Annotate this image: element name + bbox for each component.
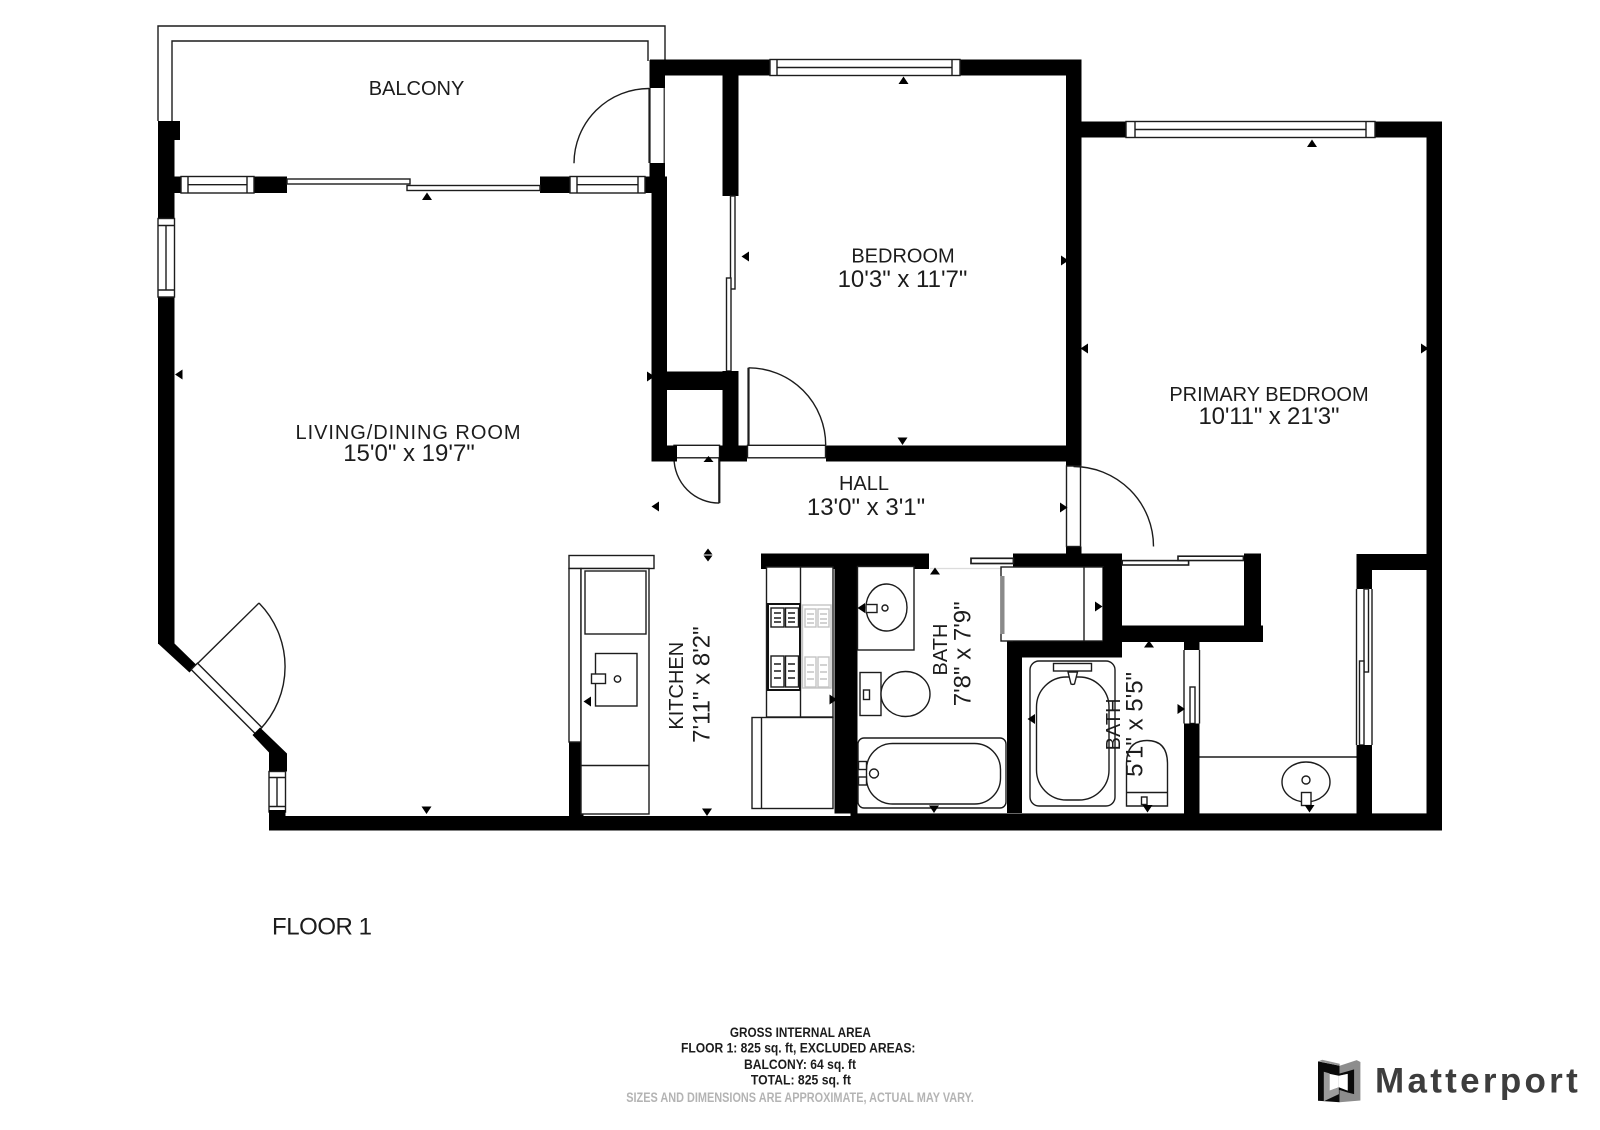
svg-text:BALCONY: 64 sq. ft: BALCONY: 64 sq. ft	[744, 1057, 856, 1072]
svg-text:5'1" x 5'5": 5'1" x 5'5"	[1122, 672, 1149, 777]
svg-text:10'3" x 11'7": 10'3" x 11'7"	[838, 266, 968, 293]
svg-text:FLOOR 1: 825 sq. ft, EXCLUDED: FLOOR 1: 825 sq. ft, EXCLUDED AREAS:	[681, 1040, 916, 1055]
svg-text:GROSS INTERNAL AREA: GROSS INTERNAL AREA	[730, 1025, 871, 1040]
svg-text:BEDROOM: BEDROOM	[851, 246, 954, 268]
svg-text:FLOOR 1: FLOOR 1	[272, 914, 372, 941]
svg-text:TOTAL: 825 sq. ft: TOTAL: 825 sq. ft	[751, 1073, 851, 1088]
svg-text:KITCHEN: KITCHEN	[666, 642, 688, 730]
svg-text:BALCONY: BALCONY	[369, 78, 465, 100]
svg-text:13'0" x 3'1": 13'0" x 3'1"	[807, 494, 925, 521]
svg-text:7'8" x 7'9": 7'8" x 7'9"	[950, 601, 977, 706]
svg-text:Matterport: Matterport	[1375, 1062, 1581, 1101]
svg-text:15'0" x 19'7": 15'0" x 19'7"	[343, 440, 475, 467]
svg-text:HALL: HALL	[839, 473, 889, 495]
svg-text:SIZES AND DIMENSIONS ARE APPRO: SIZES AND DIMENSIONS ARE APPROXIMATE, AC…	[626, 1090, 974, 1105]
svg-text:10'11" x 21'3": 10'11" x 21'3"	[1199, 403, 1340, 430]
svg-text:7'11" x 8'2": 7'11" x 8'2"	[689, 626, 716, 743]
